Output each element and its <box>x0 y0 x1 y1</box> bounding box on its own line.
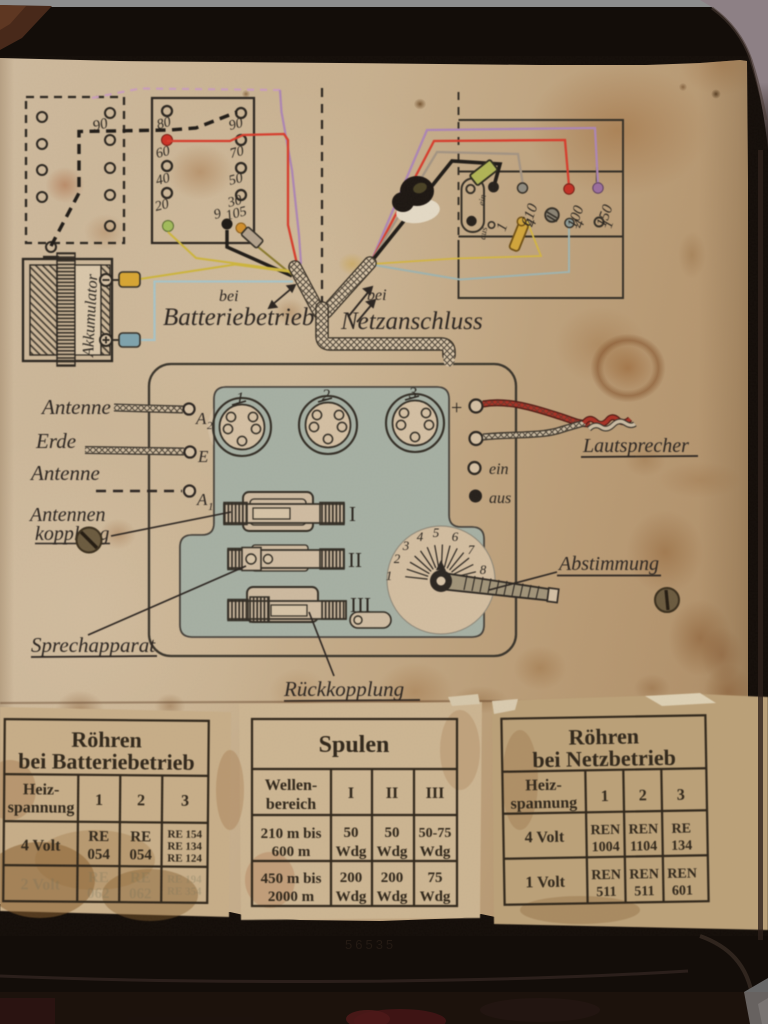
svg-text:56535: 56535 <box>345 937 396 952</box>
